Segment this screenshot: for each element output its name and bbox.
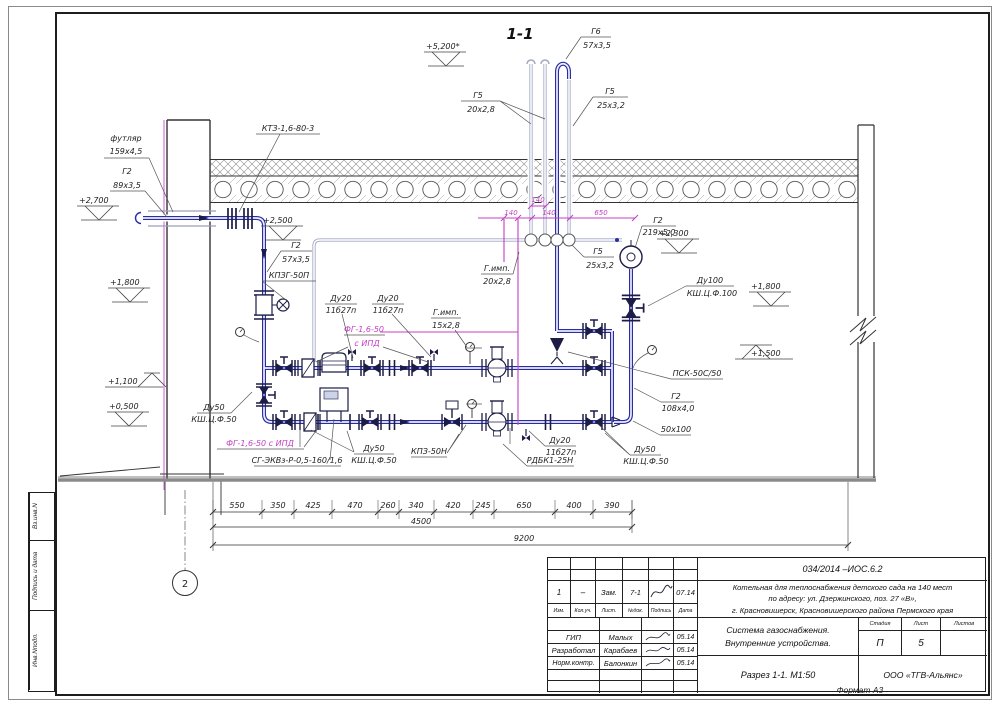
label-g5-20: Г5 (473, 91, 483, 100)
label-g6-57-size: 57x3,5 (583, 41, 611, 50)
label-du50-left-type: КШ.Ц.Ф.50 (191, 415, 236, 424)
label-g5-25-top-size: 25x3,2 (597, 101, 625, 110)
pressure-gauge (236, 328, 245, 337)
elev-2500: +2,500 (263, 216, 293, 225)
role-gip: ГИП (548, 631, 600, 644)
role-razrabotal: Разработал (548, 644, 600, 657)
psk-relief-valve (550, 338, 564, 364)
impulse-lines: 140 140 140 650 (380, 196, 638, 425)
label-psk: ПСК-50С/50 (673, 369, 722, 378)
rev-header-koluch: Кол.уч. (571, 604, 596, 618)
name-karabaev: Карабаев (600, 644, 642, 657)
margin-strip: Вз.инв.N Подпись и дата Инв.Nподл. (28, 492, 55, 692)
system-title: Система газоснабжения. Внутренние устрой… (698, 618, 859, 656)
dim-425: 425 (305, 501, 320, 510)
strip-cell-invpodl: Инв.Nподл. (29, 611, 41, 690)
left-wall (164, 120, 210, 490)
date-razrabotal: 05.14 (674, 644, 698, 657)
rev-header-podpis: Подпись (649, 604, 674, 618)
label-du100-type: КШ.Ц.Ф.100 (687, 289, 737, 298)
label-du20-b-type: 11б27п (373, 306, 404, 315)
elev-2700: +2,700 (79, 196, 109, 205)
dimension-chain: 550 350 425 470 260 340 420 245 650 400 … (210, 482, 851, 551)
label-du100: Ду100 (696, 276, 723, 285)
axis-number: 2 (182, 579, 188, 590)
label-g5-25-mid: Г5 (593, 247, 603, 256)
rev-header-data: Дата (674, 604, 698, 618)
label-futlyar-size: 159x4,5 (110, 147, 143, 156)
dim-340: 340 (408, 501, 423, 510)
project-line1: Котельная для теплоснабжения детского са… (733, 582, 953, 594)
label-g2-89-size: 89x3,5 (113, 181, 141, 190)
label-gimp20: Г.имп. (484, 264, 510, 273)
name-balonkin: Балонкин (600, 657, 642, 670)
strip-cell-vzinv: Вз.инв.N (29, 493, 41, 540)
signature (649, 581, 674, 604)
label-reducer: 50x100 (661, 425, 691, 434)
label-g2-89: Г2 (122, 167, 132, 176)
label-du20-c: Ду20 (548, 436, 570, 445)
label-gimp15-size: 15x2,8 (432, 321, 460, 330)
project-line2: по адресу: ул. Дзержинского, поз. 27 «В»… (768, 593, 916, 605)
foundation (60, 467, 224, 515)
format-note: Формат А3 (818, 685, 902, 695)
label-g5-20-size: 20x2,8 (467, 105, 495, 114)
rev-num: 1 (548, 581, 571, 604)
elev-1800-right: +1,800 (751, 282, 781, 291)
sheets-header: Листов (941, 618, 987, 631)
flow-arrows (199, 215, 410, 425)
elev-1800-left: +1,800 (110, 278, 140, 287)
project-line3: г. Красновишерск, Красновишерского район… (732, 605, 953, 617)
stage-value: П (859, 631, 902, 656)
dim-9200: 9200 (514, 534, 534, 543)
label-kpzg: КПЗГ-50П (269, 271, 309, 280)
dim-470: 470 (347, 501, 362, 510)
label-fg-bottom: ФГ-1,6-50 с ИПД (226, 439, 294, 448)
rev-date: 07.14 (674, 581, 698, 604)
date-gip: 05.14 (674, 631, 698, 644)
dim-140-a: 140 (504, 209, 518, 217)
label-g6-57: Г6 (591, 27, 601, 36)
label-g2-108-size: 108x4,0 (662, 404, 695, 413)
drawing-sheet: 140 140 140 650 (0, 0, 1000, 706)
label-g5-25-top: Г5 (605, 87, 615, 96)
label-du50-mid: Ду50 (362, 444, 384, 453)
label-gimp15: Г.имп. (433, 308, 459, 317)
label-g2-57: Г2 (291, 241, 301, 250)
sheet-value: 5 (902, 631, 941, 656)
label-du20-a-type: 11б27п (326, 306, 357, 315)
rev-header-izm: Изм. (548, 604, 571, 618)
dim-390: 390 (604, 501, 619, 510)
elev-5200: +5,200* (426, 42, 460, 51)
label-rdbk: РДБК1-25Н (527, 456, 573, 465)
elev-1500: +1,500 (751, 349, 781, 358)
label-du50-left: Ду50 (202, 403, 224, 412)
label-sg-meter: СГ-ЭКВз-Р-0,5-160/1,6 (252, 456, 343, 465)
elev-1100: +1,100 (108, 377, 138, 386)
g2-riser-elbow (620, 240, 642, 268)
dim-4500: 4500 (411, 517, 431, 526)
sheets-value (941, 631, 987, 656)
label-du50-mid-type: КШ.Ц.Ф.50 (351, 456, 396, 465)
project-title: Котельная для теплоснабжения детского са… (698, 581, 987, 618)
label-du50-right-type: КШ.Ц.Ф.50 (623, 457, 668, 466)
label-g5-25-mid-size: 25x3,2 (586, 261, 614, 270)
system-line2: Внутренние устройства. (725, 637, 831, 650)
strip-cell-podpis: Подпись и дата (29, 541, 41, 610)
label-du20-b: Ду20 (376, 294, 398, 303)
label-du20-a: Ду20 (329, 294, 351, 303)
label-g2-219-size: 219x5,0 (643, 228, 676, 237)
date-normkontr: 05.14 (674, 657, 698, 670)
dim-140-b: 140 (542, 209, 556, 217)
dim-550: 550 (229, 501, 244, 510)
axis-mark: 2 (173, 490, 198, 596)
elev-0500: +0,500 (109, 402, 139, 411)
label-kpz: КПЗ-50Н (411, 447, 447, 456)
label-fg-top-ipd: с ИПД (354, 339, 379, 348)
rev-col: – (571, 581, 596, 604)
label-ktz: КТЗ-1,6-80-3 (262, 124, 314, 133)
system-line1: Система газоснабжения. (726, 624, 829, 637)
label-gimp20-size: 20x2,8 (483, 277, 511, 286)
name-malykh: Малых (600, 631, 642, 644)
section-title: 1-1 (506, 25, 533, 43)
label-fg-top: ФГ-1,6-50 (344, 325, 384, 334)
dim-400: 400 (566, 501, 581, 510)
rev-doc: 7-1 (623, 581, 649, 604)
sheet-header: Лист (902, 618, 941, 631)
dim-650: 650 (594, 209, 608, 217)
dim-650b: 650 (516, 501, 531, 510)
signature (642, 631, 674, 644)
rev-header-doc: №док. (623, 604, 649, 618)
kpzg-valve (254, 291, 289, 319)
dim-350: 350 (270, 501, 285, 510)
label-du50-right: Ду50 (633, 445, 655, 454)
signature (642, 644, 674, 657)
rev-type: Зам. (596, 581, 623, 604)
label-g2-108: Г2 (671, 392, 681, 401)
role-normkontr: Норм.контр. (548, 657, 600, 670)
pressure-gauge (648, 346, 657, 355)
dim-140-top: 140 (531, 196, 545, 204)
label-g2-219: Г2 (653, 216, 663, 225)
title-block: 1 – Зам. 7-1 07.14 Изм. Кол.уч. Лист. №д… (547, 557, 986, 692)
dim-260: 260 (380, 501, 395, 510)
stage-header: Стадия (859, 618, 902, 631)
dim-245: 245 (475, 501, 490, 510)
doc-number: 034/2014 –ИОС.6.2 (698, 558, 987, 581)
label-g2-57-size: 57x3,5 (282, 255, 310, 264)
dim-420: 420 (445, 501, 460, 510)
label-futlyar: футляр (110, 134, 141, 143)
rev-header-list: Лист. (596, 604, 623, 618)
signature (642, 657, 674, 670)
